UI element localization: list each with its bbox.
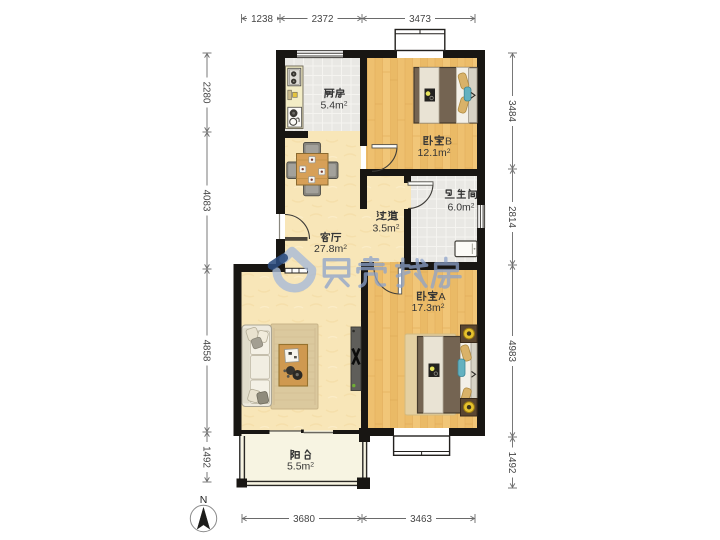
svg-text:1238: 1238 xyxy=(251,14,273,25)
svg-text:5.5m2: 5.5m2 xyxy=(287,461,314,473)
svg-text:1492: 1492 xyxy=(201,446,212,468)
svg-text:3463: 3463 xyxy=(410,514,432,525)
svg-text:6.0m2: 6.0m2 xyxy=(447,202,474,214)
svg-text:4858: 4858 xyxy=(201,340,212,362)
svg-text:2814: 2814 xyxy=(506,206,517,228)
svg-text:3473: 3473 xyxy=(409,14,431,25)
svg-text:17.3m2: 17.3m2 xyxy=(412,302,445,314)
svg-text:2372: 2372 xyxy=(312,14,334,25)
svg-text:1492: 1492 xyxy=(506,452,517,474)
svg-text:3680: 3680 xyxy=(293,514,315,525)
svg-text:3484: 3484 xyxy=(506,100,517,122)
svg-text:4983: 4983 xyxy=(506,340,517,362)
svg-text:27.8m2: 27.8m2 xyxy=(314,243,347,255)
svg-text:4083: 4083 xyxy=(201,190,212,212)
svg-text:N: N xyxy=(200,494,208,506)
svg-text:12.1m2: 12.1m2 xyxy=(418,147,451,159)
svg-text:B: B xyxy=(445,136,452,148)
svg-text:2280: 2280 xyxy=(201,82,212,104)
svg-text:3.5m2: 3.5m2 xyxy=(372,223,399,235)
svg-text:5.4m2: 5.4m2 xyxy=(320,100,347,112)
